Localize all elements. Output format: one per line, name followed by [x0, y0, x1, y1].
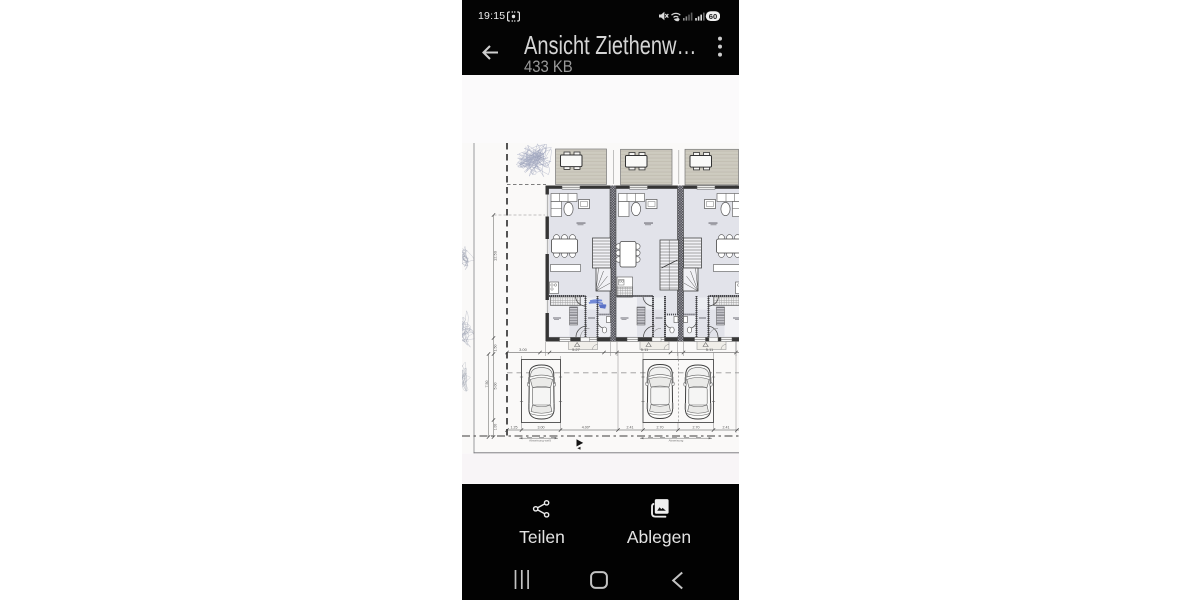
svg-text:5.27: 5.27	[572, 347, 581, 352]
svg-text:5.11: 5.11	[706, 347, 714, 352]
svg-text:Abweisung weiß: Abweisung weiß	[529, 439, 551, 443]
svg-text:1.25: 1.25	[511, 426, 518, 430]
svg-text:60: 60	[709, 12, 717, 21]
svg-text:7.50: 7.50	[485, 381, 489, 388]
svg-text:2.41: 2.41	[627, 426, 634, 430]
svg-text:4.00*: 4.00*	[582, 426, 591, 430]
svg-text:12.50: 12.50	[493, 250, 498, 261]
svg-text:2.41: 2.41	[723, 426, 730, 430]
svg-text:5.11: 5.11	[641, 347, 649, 352]
svg-text:1.50: 1.50	[494, 345, 498, 352]
svg-text:Abweisung: Abweisung	[669, 439, 684, 443]
svg-text:3.00: 3.00	[538, 426, 545, 430]
svg-text:3.00: 3.00	[519, 347, 528, 352]
svg-text:2.70: 2.70	[693, 426, 700, 430]
svg-text:1.00: 1.00	[494, 424, 498, 431]
svg-text:2.70: 2.70	[657, 426, 664, 430]
svg-text:5.00: 5.00	[494, 383, 498, 390]
